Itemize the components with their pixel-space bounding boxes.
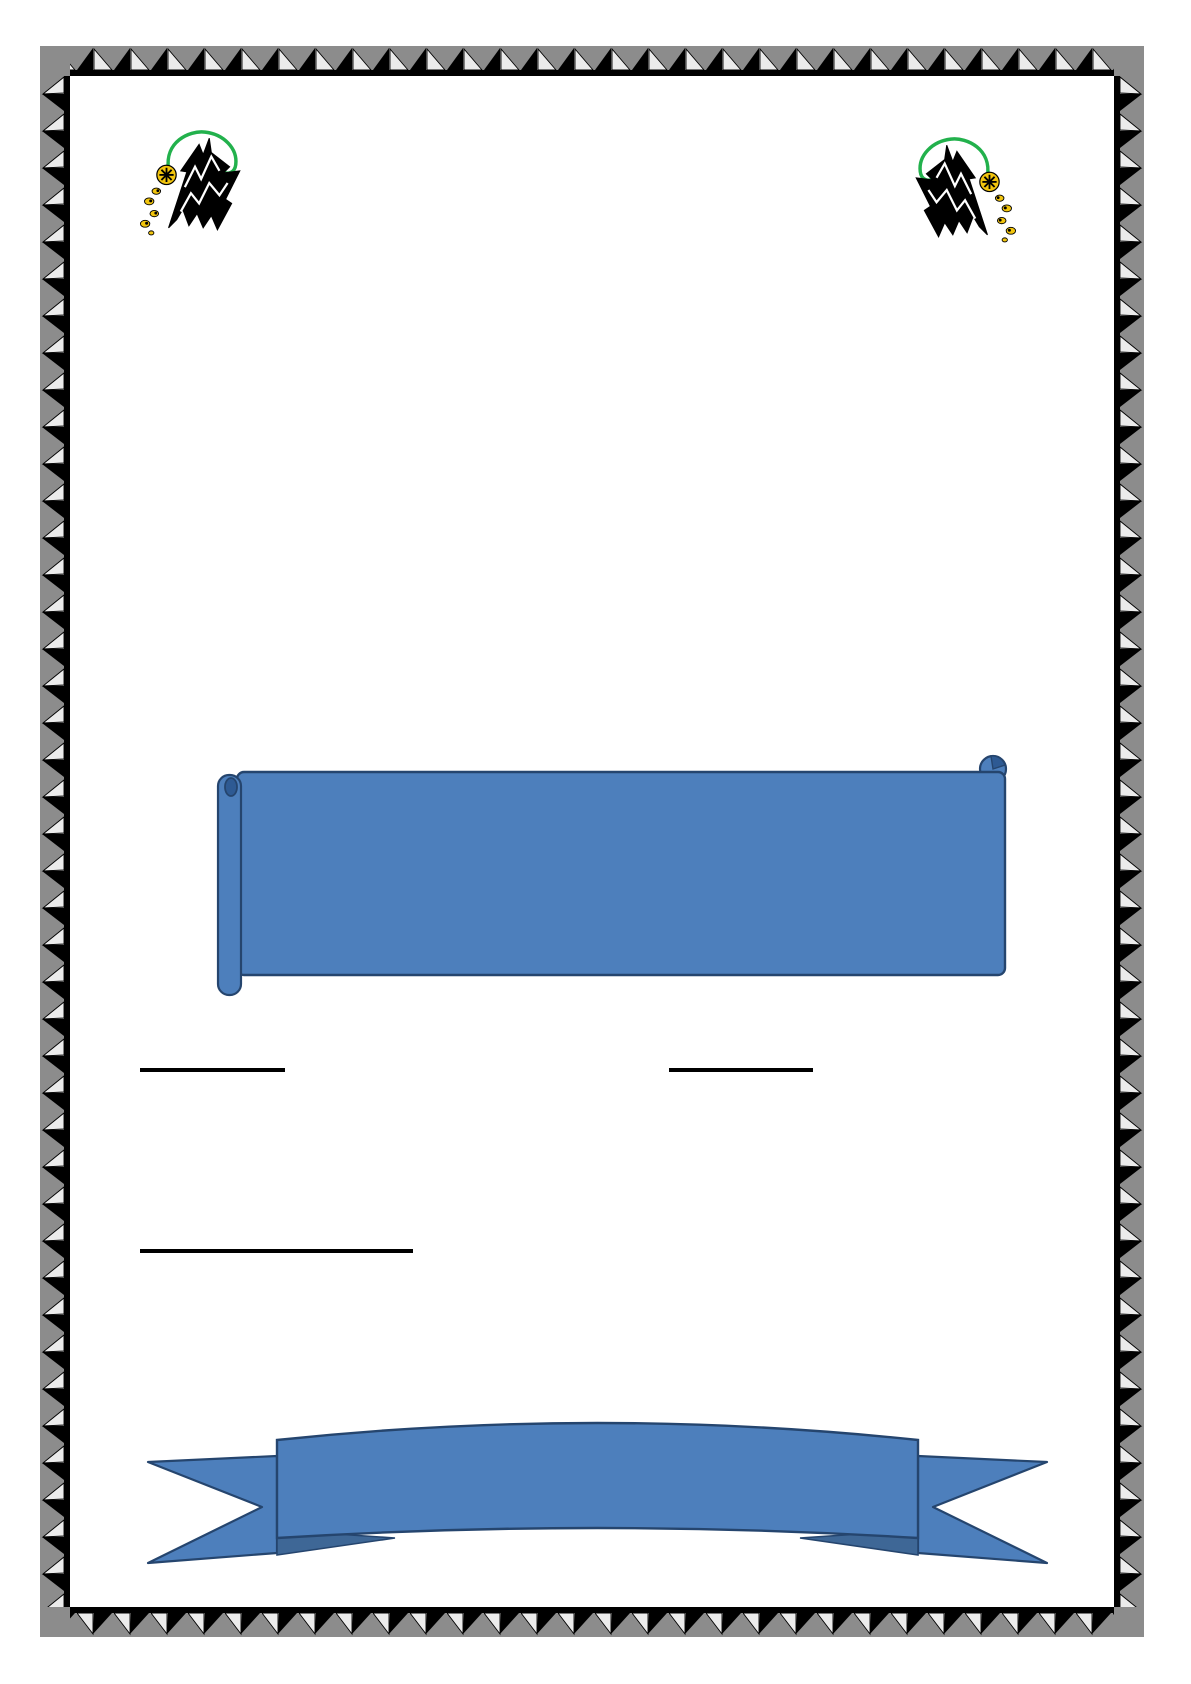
scroll-left-curl <box>225 778 237 796</box>
border-left <box>40 76 70 1607</box>
university-crest-icon-left <box>138 126 250 236</box>
border-right <box>1114 76 1144 1607</box>
underline-right <box>669 1068 813 1072</box>
university-crest-icon-right <box>906 133 1018 243</box>
ribbon-banner <box>140 1412 1055 1577</box>
ribbon-tail-right <box>918 1456 1047 1563</box>
border-bottom <box>40 1607 1144 1637</box>
underline-left <box>140 1068 285 1072</box>
scroll-left-roll <box>218 775 241 995</box>
ribbon-tail-left <box>148 1456 277 1563</box>
underline-long <box>140 1249 413 1253</box>
border-top <box>40 46 1144 76</box>
scroll-banner <box>205 745 1015 1005</box>
ribbon-band <box>277 1423 918 1538</box>
scroll-body <box>237 772 1005 975</box>
document-page <box>0 0 1191 1684</box>
